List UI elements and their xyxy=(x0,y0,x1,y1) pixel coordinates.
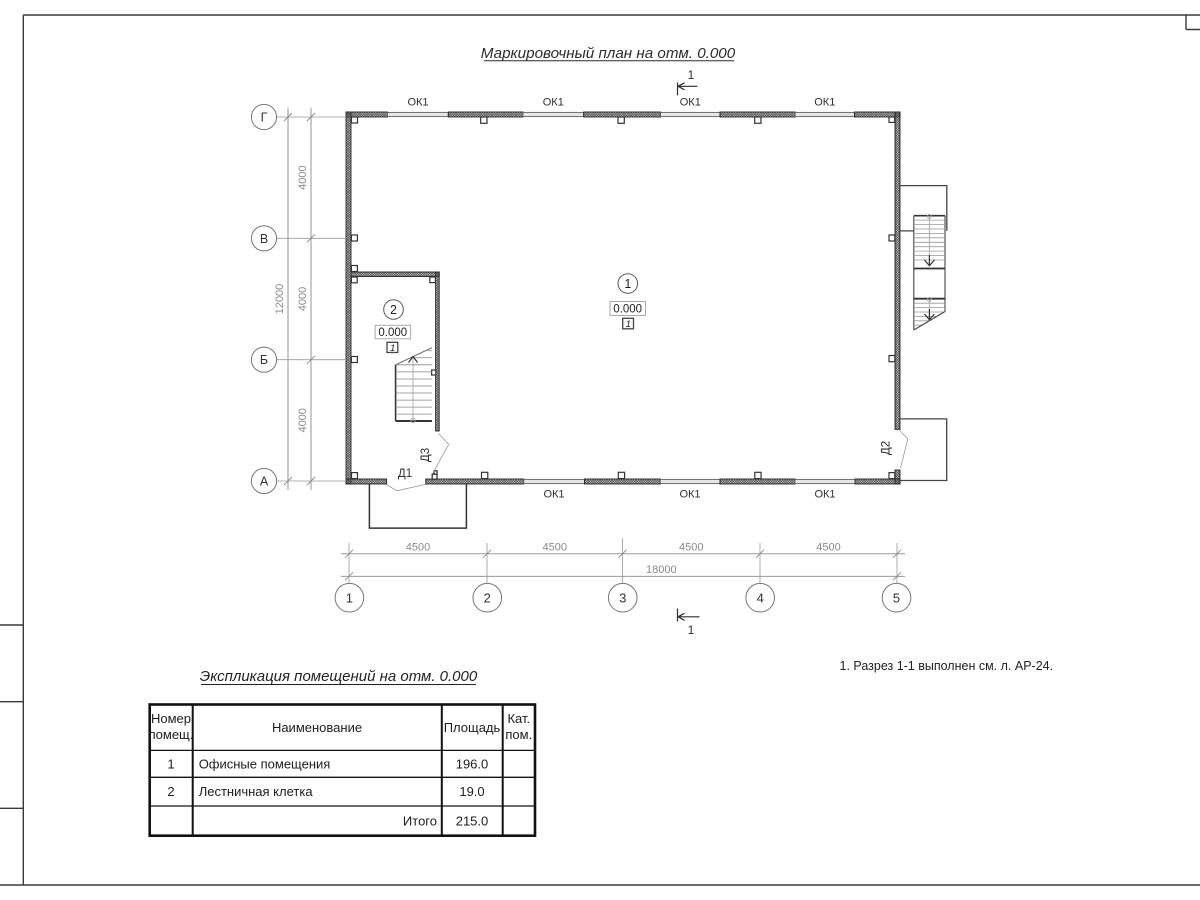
svg-text:1. Разрез 1-1 выполнен см. л.: 1. Разрез 1-1 выполнен см. л. АР-24. xyxy=(840,659,1054,673)
svg-text:3: 3 xyxy=(619,591,626,606)
svg-text:12000: 12000 xyxy=(274,284,286,315)
svg-text:Лестничная клетка: Лестничная клетка xyxy=(199,784,314,799)
svg-text:Номер: Номер xyxy=(151,711,191,726)
svg-text:ОК1: ОК1 xyxy=(814,489,835,501)
svg-text:4000: 4000 xyxy=(297,165,309,189)
svg-text:1: 1 xyxy=(167,757,174,772)
svg-text:ОК1: ОК1 xyxy=(680,97,701,109)
svg-text:Экспликация помещений на отм.: Экспликация помещений на отм. 0.000 xyxy=(200,668,478,685)
svg-text:Маркировочный план на отм. 0.0: Маркировочный план на отм. 0.000 xyxy=(481,45,736,62)
svg-text:2: 2 xyxy=(167,784,174,799)
svg-text:Г: Г xyxy=(261,111,268,125)
svg-text:4500: 4500 xyxy=(816,542,840,554)
svg-text:0.000: 0.000 xyxy=(378,327,407,339)
svg-text:Б: Б xyxy=(260,353,268,367)
svg-text:1: 1 xyxy=(390,343,395,354)
svg-text:Наименование: Наименование xyxy=(272,720,362,735)
svg-text:пом.: пом. xyxy=(505,727,532,742)
svg-text:1: 1 xyxy=(688,68,695,82)
svg-text:1: 1 xyxy=(346,591,353,606)
svg-text:2: 2 xyxy=(484,591,491,606)
svg-text:4000: 4000 xyxy=(297,287,309,311)
svg-text:4500: 4500 xyxy=(543,542,567,554)
svg-text:ОК1: ОК1 xyxy=(814,97,835,109)
svg-text:19.0: 19.0 xyxy=(459,784,484,799)
svg-text:4500: 4500 xyxy=(406,542,430,554)
svg-text:Итого: Итого xyxy=(403,814,437,829)
svg-text:ОК1: ОК1 xyxy=(543,97,564,109)
svg-text:Кат.: Кат. xyxy=(507,711,530,726)
svg-text:В: В xyxy=(260,232,268,246)
svg-text:помещ.: помещ. xyxy=(149,727,194,742)
svg-text:1: 1 xyxy=(626,319,631,330)
svg-text:А: А xyxy=(260,475,269,489)
svg-text:Офисные помещения: Офисные помещения xyxy=(199,757,331,772)
svg-text:4000: 4000 xyxy=(297,408,309,432)
svg-text:1: 1 xyxy=(688,623,695,637)
svg-text:4500: 4500 xyxy=(679,542,703,554)
svg-text:4: 4 xyxy=(757,591,764,606)
svg-text:215.0: 215.0 xyxy=(456,814,489,829)
svg-text:0.000: 0.000 xyxy=(613,304,642,316)
svg-text:Д1: Д1 xyxy=(398,468,412,480)
svg-text:Д2: Д2 xyxy=(881,441,893,455)
svg-text:5: 5 xyxy=(893,591,900,606)
svg-text:2: 2 xyxy=(390,303,397,317)
svg-text:Площадь: Площадь xyxy=(444,720,501,735)
svg-text:ОК1: ОК1 xyxy=(407,97,428,109)
svg-text:ОК1: ОК1 xyxy=(543,489,564,501)
svg-text:Д3: Д3 xyxy=(420,448,432,462)
svg-text:196.0: 196.0 xyxy=(456,757,489,772)
svg-text:18000: 18000 xyxy=(646,564,677,576)
svg-text:1: 1 xyxy=(624,277,631,291)
svg-text:ОК1: ОК1 xyxy=(679,489,700,501)
